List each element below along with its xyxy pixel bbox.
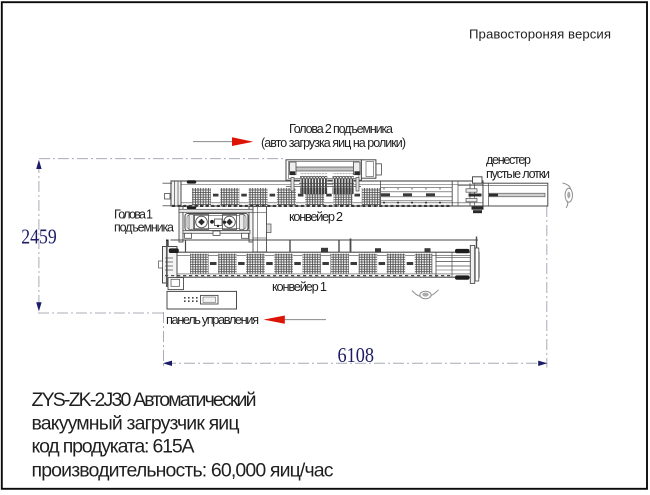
svg-text:панель управления: панель управления	[166, 312, 259, 327]
svg-text:Правостороняя версия: Правостороняя версия	[469, 27, 611, 42]
svg-text:денестер: денестер	[486, 153, 531, 167]
svg-text:6108: 6108	[338, 343, 375, 367]
svg-text:конвейер 2: конвейер 2	[289, 209, 343, 224]
svg-text:Голова 2 подъемника: Голова 2 подъемника	[289, 122, 393, 136]
svg-text:2459: 2459	[21, 224, 56, 248]
svg-text:вакуумный загрузчик яиц: вакуумный загрузчик яиц	[32, 413, 240, 435]
svg-text:подъемника: подъемника	[114, 220, 174, 234]
svg-text:производительность: 60,000 яиц: производительность: 60,000 яиц/час	[32, 460, 334, 482]
svg-text:(авто загрузка яиц на ролики): (авто загрузка яиц на ролики)	[261, 136, 406, 150]
svg-text:пустые лотки: пустые лотки	[486, 167, 550, 181]
svg-text:код продуката: 615А: код продуката: 615А	[32, 436, 195, 458]
svg-text:конвейер 1: конвейер 1	[272, 279, 327, 294]
svg-text:ZYS-ZK-2J30 Автоматический: ZYS-ZK-2J30 Автоматический	[32, 389, 257, 411]
svg-text:Голова 1: Голова 1	[114, 207, 153, 221]
